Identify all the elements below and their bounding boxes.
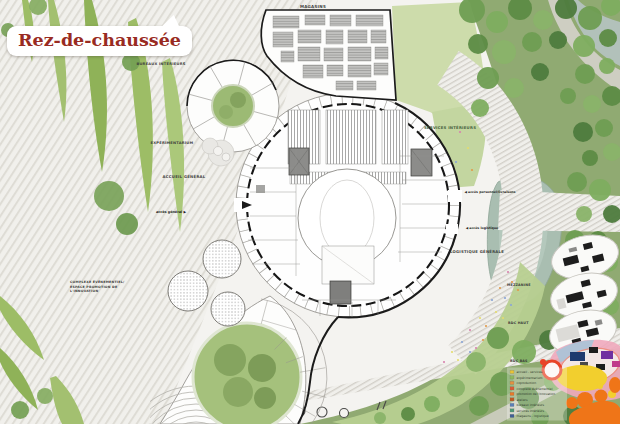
label-accueil-general: ACCUEIL GÉNÉRAL bbox=[163, 174, 206, 179]
title-bubble: Rez-de-chaussée bbox=[7, 26, 192, 56]
legend-label: promotion de l'innovation bbox=[517, 392, 556, 396]
legend: accueil - services expérimentarium copro… bbox=[507, 368, 567, 421]
label-complexe-line2: ESPACE PROMOTION DE bbox=[70, 285, 117, 289]
label-logistique-generale: LOGISTIQUE GÉNÉRALE bbox=[450, 249, 504, 254]
label-acces-personnel: ◀ accès personnel/livraisons bbox=[464, 190, 515, 194]
legend-item: complexe événementiel bbox=[510, 387, 553, 391]
legend-label: accueil - services bbox=[517, 370, 543, 374]
legend-swatch bbox=[510, 381, 514, 384]
legend-swatch bbox=[510, 387, 514, 390]
label-magasins: MAGASINS bbox=[300, 4, 326, 9]
legend-label: ateliers bbox=[517, 398, 529, 402]
label-acces-logistique: ◀ accès logistique bbox=[466, 226, 499, 230]
coworking-ring bbox=[187, 60, 279, 152]
legend-swatch bbox=[510, 370, 514, 373]
floor-plan-page: MAGASINS BUREAUX INTÉRIEURS SERVICES INT… bbox=[0, 0, 620, 424]
legend-label: expérimentarium bbox=[517, 376, 543, 380]
legend-swatch bbox=[510, 376, 514, 379]
label-complexe-line1: COMPLEXE ÉVÉNEMENTIEL/ bbox=[70, 280, 125, 284]
legend-label: complexe événementiel bbox=[517, 387, 553, 391]
legend-swatch bbox=[510, 414, 514, 417]
legend-swatch bbox=[510, 403, 514, 406]
label-bureaux-interieurs: BUREAUX INTÉRIEURS bbox=[136, 61, 185, 66]
legend-label: services intérieurs bbox=[517, 409, 545, 413]
legend-item: magasins - logistique bbox=[510, 414, 549, 418]
legend-swatch bbox=[510, 392, 514, 395]
label-mezzanine: MEZZANINE bbox=[507, 283, 531, 287]
legend-label: magasins - logistique bbox=[517, 414, 549, 418]
label-acces-general: accès général ▶ bbox=[156, 210, 187, 214]
legend-swatch bbox=[510, 409, 514, 412]
legend-item: promotion de l'innovation bbox=[510, 392, 555, 396]
label-experimentarium: EXPÉRIMENTARIUM bbox=[151, 140, 194, 145]
label-services-interieurs: SERVICES INTÉRIEURS bbox=[424, 125, 476, 130]
label-complexe-line3: L'INNOVATION bbox=[70, 289, 98, 293]
legend-swatch bbox=[510, 398, 514, 401]
label-rdc-haut: RDC HAUT bbox=[508, 321, 529, 325]
legend-label: bureaux intérieurs bbox=[517, 403, 545, 407]
page-title: Rez-de-chaussée bbox=[18, 30, 181, 50]
site-plan-drawing: MAGASINS BUREAUX INTÉRIEURS SERVICES INT… bbox=[0, 0, 620, 424]
label-rdc-bas: RDC BAS bbox=[510, 359, 528, 363]
legend-label: coproduction bbox=[517, 381, 537, 385]
